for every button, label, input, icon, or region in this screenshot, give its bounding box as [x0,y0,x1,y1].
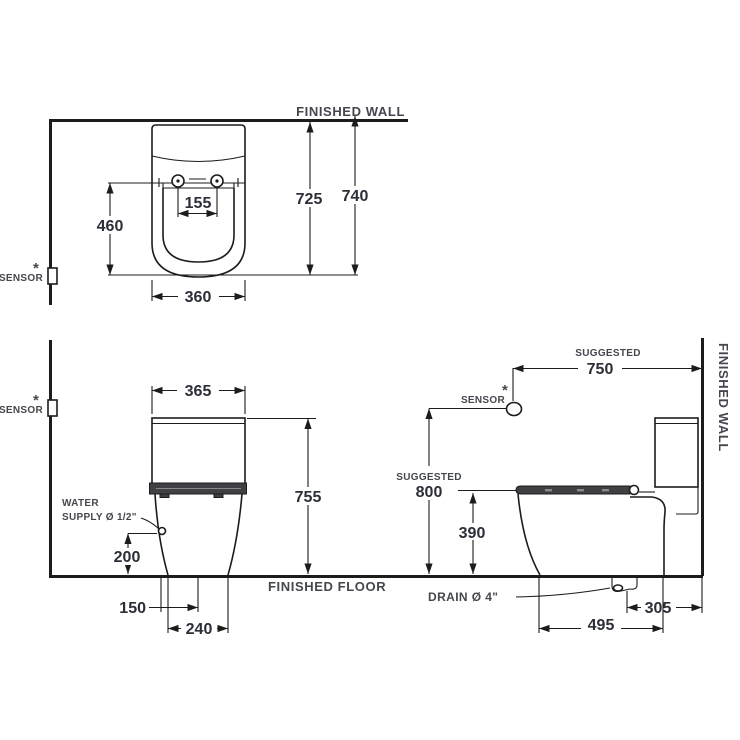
dim-seat-depth-value: 460 [97,218,124,235]
sensor-circle-side [507,403,522,416]
dim-sensor-height-value: 800 [416,484,443,501]
suggested-label-750: SUGGESTED [575,348,641,359]
dim-drain-to-wall: 305 [627,578,702,617]
water-supply-label-line1: WATER [62,498,99,509]
dim-total-height-value: 755 [295,489,322,506]
dim-plan-width-value: 360 [185,289,212,306]
drain-right [630,577,637,589]
pedestal-right [228,494,242,575]
dim-tank-width-value: 365 [185,383,212,400]
sensor-label-side: SENSOR [461,395,506,406]
tank-front-curve [152,156,245,162]
sensor-asterisk-plan: * [33,260,39,277]
water-supply-leader [141,518,158,528]
seat-hinge-side [630,486,639,495]
dim-side-depth-value: 495 [588,617,615,634]
dim-total-depth: 740 [334,116,376,275]
dim-sensor-height: SUGGESTED 800 [396,409,462,575]
dim-supply-offset-value: 150 [119,600,146,617]
dim-seat-depth: 460 [89,183,132,275]
technical-drawing-page: FINISHED WALL SENSOR * 155 [0,0,740,740]
bolt-dot-left [176,179,179,182]
finished-floor-label: FINISHED FLOOR [268,579,386,594]
finished-wall-label-right: FINISHED WALL [716,343,731,452]
dim-supply-height: 200 [108,534,157,575]
dim-drain-to-wall-value: 305 [645,600,672,617]
seat-slot-1 [545,489,552,491]
dim-plan-width: 360 [152,280,245,306]
drain-outlet [614,585,623,591]
tank-side [655,418,698,487]
finished-wall-label-top: FINISHED WALL [296,104,405,119]
dim-bolt-spacing: 155 [178,188,217,217]
dim-supply-height-value: 200 [114,549,141,566]
dim-wall-to-front-value: 725 [296,191,323,208]
drain-leader [516,588,610,597]
suggested-label-800: SUGGESTED [396,472,462,483]
sensor-box-front [48,400,57,416]
seat-slot-2 [577,489,584,491]
seat-bumper-left [160,494,169,498]
toilet-dimension-diagram: FINISHED WALL SENSOR * 155 [0,0,740,740]
dim-total-depth-value: 740 [342,188,369,205]
sensor-box-plan [48,268,57,284]
side-view: SUGGESTED 750 SENSOR * SUGGESTED 800 390… [396,348,702,634]
sensor-asterisk-front: * [33,392,39,409]
sensor-asterisk-side: * [502,382,508,399]
water-supply-point [159,528,166,535]
dim-bolt-spacing-value: 155 [185,195,212,212]
pedestal-back-profile [630,497,665,575]
dim-tank-width: 365 [152,382,245,414]
pedestal-wall-step [676,487,698,514]
dim-wall-to-front: 725 [289,122,330,275]
dim-rim-height: 390 [455,491,517,575]
drain-label: DRAIN Ø 4" [428,590,498,604]
plan-view: FINISHED WALL SENSOR * 155 [0,104,408,306]
dim-sensor-distance-value: 750 [587,361,614,378]
tank-front [152,418,245,487]
front-view: 365 755 WATER SUPPLY Ø 1/2" 200 150 [62,382,329,638]
dim-supply-offset: 150 [119,600,198,617]
dim-sensor-distance: SUGGESTED 750 [513,348,702,401]
dim-base-width: 240 [168,620,228,638]
dim-total-height: 755 [247,419,329,575]
bolt-dot-right [215,179,218,182]
seat-bumper-right [214,494,223,498]
seat-slot-3 [602,489,609,491]
bowl-front-profile [518,494,540,575]
dim-rim-height-value: 390 [459,525,486,542]
water-supply-label-line2: SUPPLY Ø 1/2" [62,512,137,523]
seat-side [516,486,630,494]
dim-base-width-value: 240 [186,621,213,638]
